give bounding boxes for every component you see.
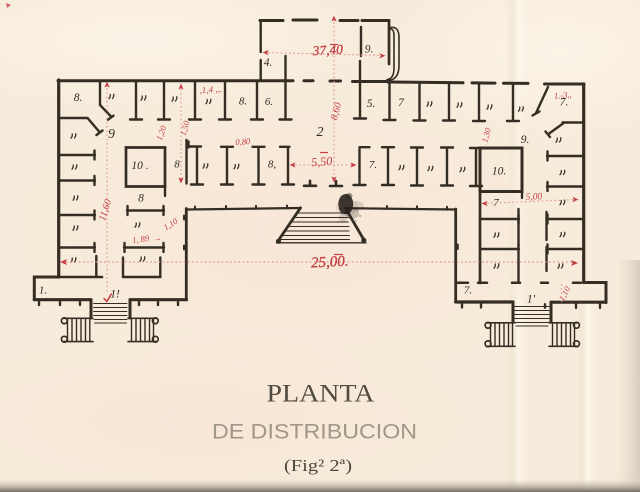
svg-text:2: 2: [317, 125, 324, 140]
svg-text:8: 8: [138, 193, 144, 205]
svg-text:0,80: 0,80: [235, 136, 251, 147]
svg-text:5,50: 5,50: [311, 154, 333, 169]
svg-text:4.: 4.: [264, 57, 273, 69]
svg-text:10.: 10.: [492, 166, 506, 178]
svg-text:DE DISTRIBUCION: DE DISTRIBUCION: [212, 421, 417, 444]
svg-text:1': 1': [527, 294, 536, 306]
svg-text:9.: 9.: [365, 44, 374, 56]
svg-text:7.: 7.: [369, 159, 377, 171]
svg-text:,1,4 ,,.: ,1,4 ,,.: [199, 84, 222, 96]
svg-text:9: 9: [108, 126, 115, 141]
svg-text:25,00.: 25,00.: [311, 254, 349, 272]
svg-text:(Fig² 2ª): (Fig² 2ª): [284, 456, 352, 475]
svg-text:1.-3,,: 1.-3,,: [553, 89, 572, 101]
svg-text:PLANTA: PLANTA: [267, 379, 376, 408]
svg-text:8: 8: [174, 159, 180, 171]
svg-text:8.: 8.: [239, 96, 247, 108]
svg-text:5,00: 5,00: [525, 192, 542, 203]
svg-text:1.: 1.: [39, 285, 47, 297]
svg-text:7.: 7.: [464, 285, 472, 297]
svg-text:5.: 5.: [367, 98, 376, 110]
svg-text:10 .: 10 .: [131, 160, 148, 172]
svg-text:6.: 6.: [265, 96, 273, 108]
svg-text:9.: 9.: [521, 134, 530, 146]
svg-text:→: →: [153, 234, 162, 244]
svg-text:8.: 8.: [74, 92, 83, 104]
svg-text:8,: 8,: [268, 159, 277, 171]
svg-text:37,40: 37,40: [311, 42, 343, 59]
